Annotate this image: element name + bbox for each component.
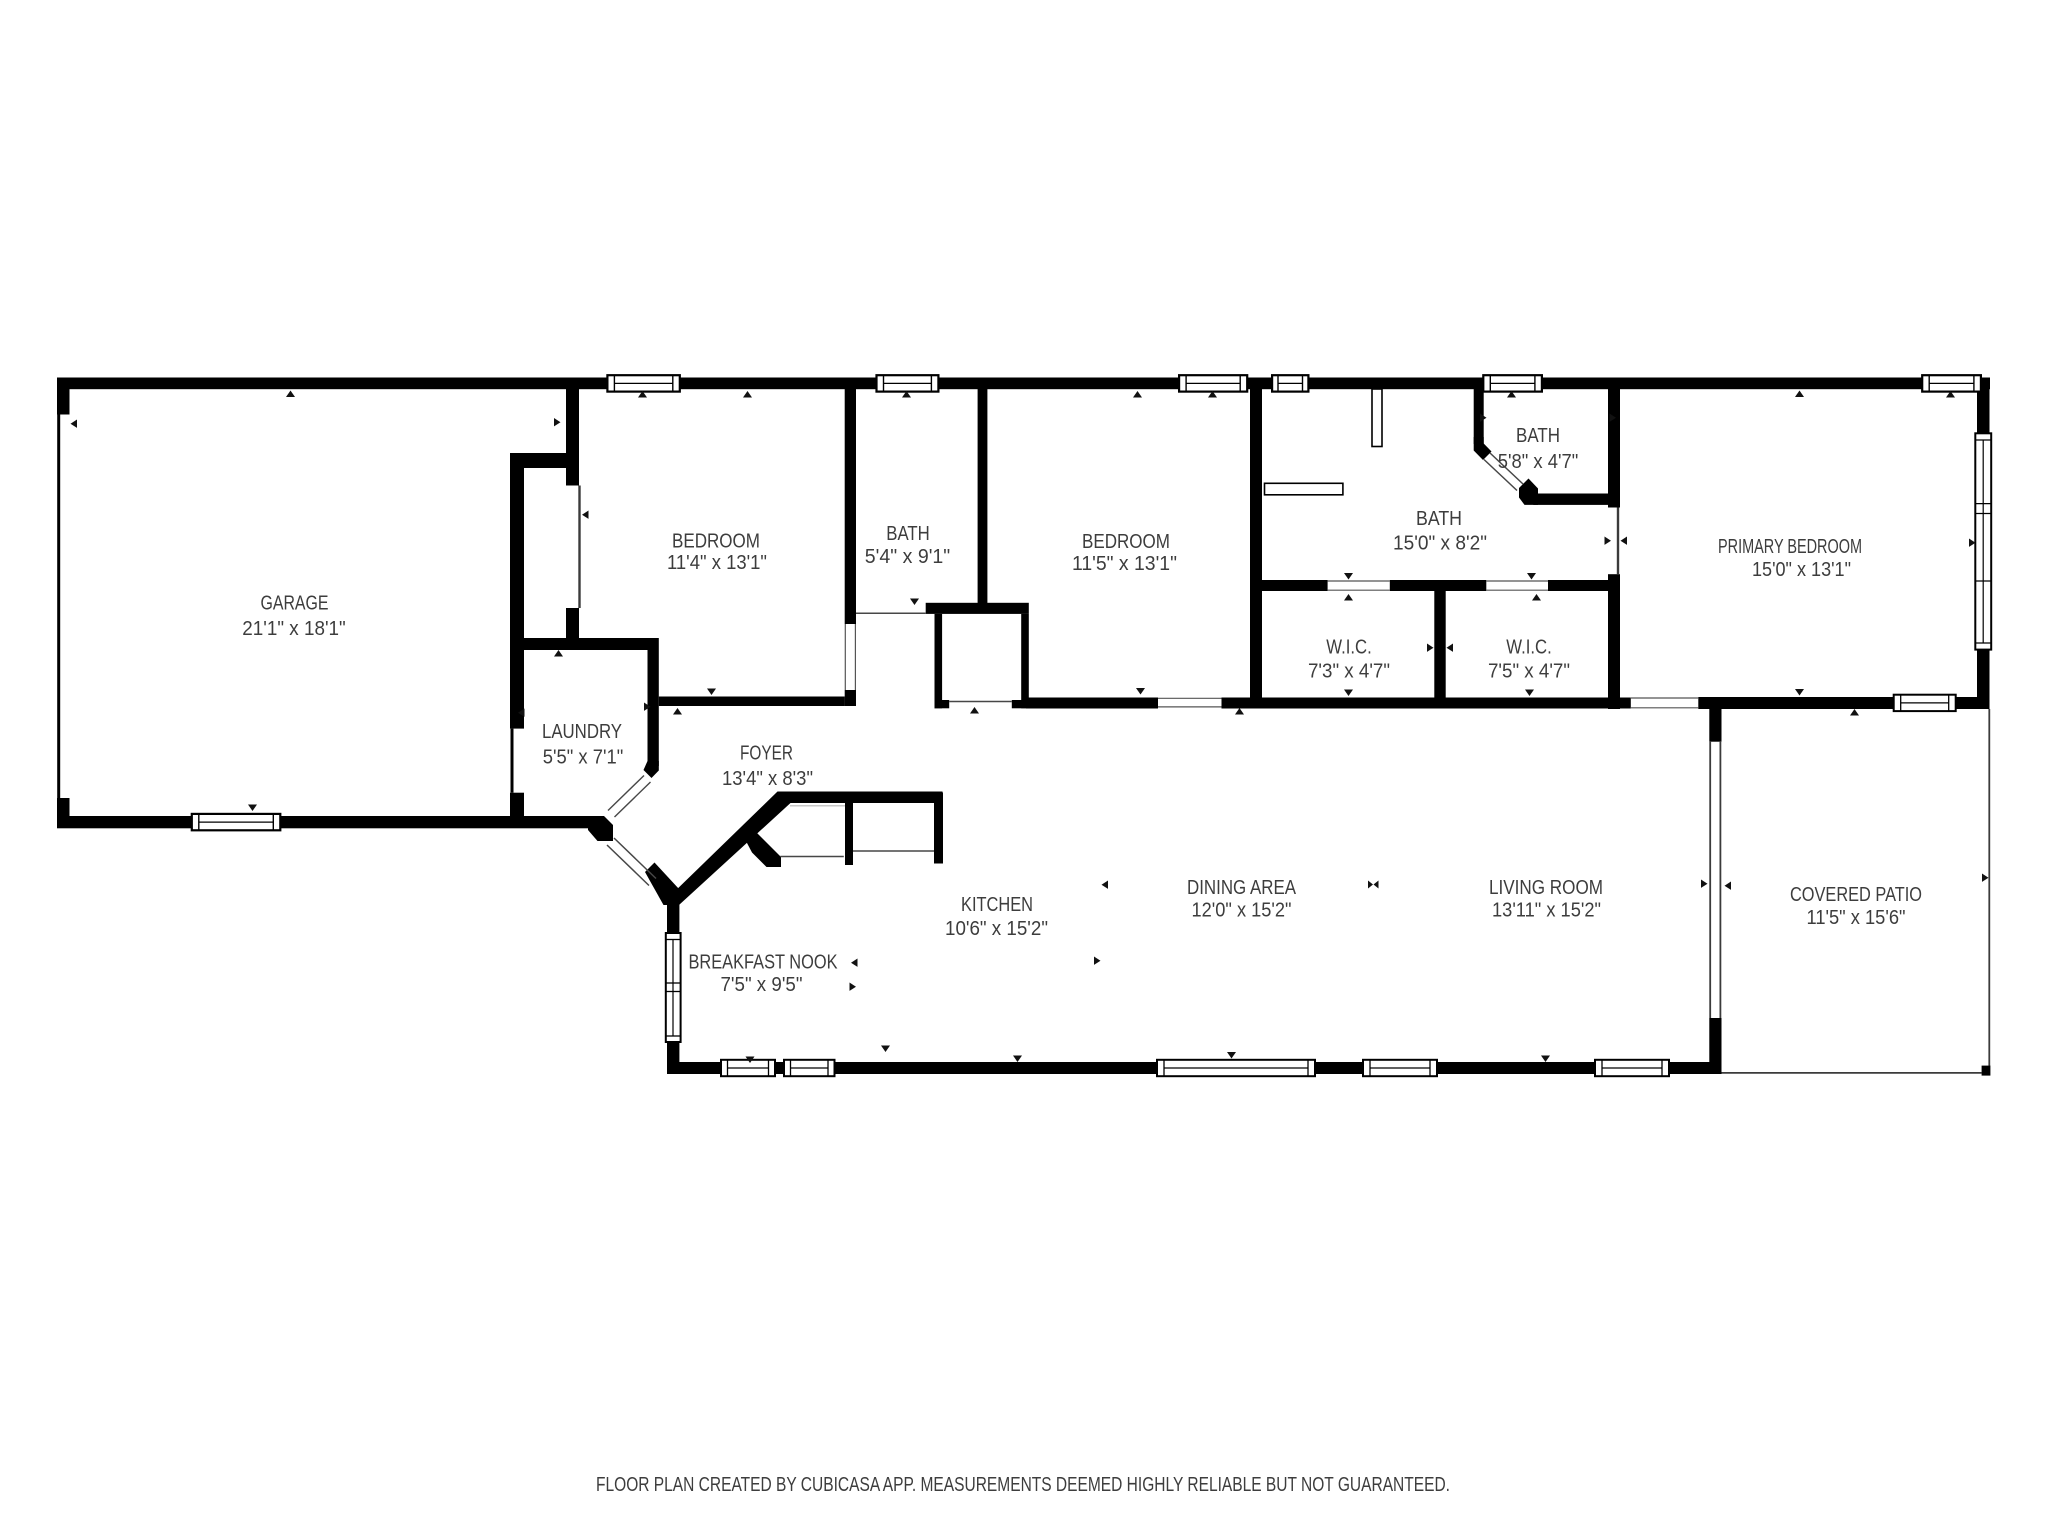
svg-text:DINING AREA: DINING AREA xyxy=(1187,876,1296,899)
svg-text:BATH: BATH xyxy=(1416,507,1462,530)
svg-text:15'0" x 8'2": 15'0" x 8'2" xyxy=(1393,532,1487,555)
svg-text:10'6" x 15'2": 10'6" x 15'2" xyxy=(945,917,1048,940)
svg-text:FOYER: FOYER xyxy=(740,742,793,765)
svg-text:5'5" x 7'1": 5'5" x 7'1" xyxy=(543,746,624,769)
svg-text:BATH: BATH xyxy=(886,522,930,545)
svg-text:11'4" x 13'1": 11'4" x 13'1" xyxy=(667,551,767,574)
svg-text:KITCHEN: KITCHEN xyxy=(961,893,1033,916)
svg-text:5'8" x 4'7": 5'8" x 4'7" xyxy=(1498,450,1579,473)
svg-text:FLOOR PLAN CREATED BY CUBICASA: FLOOR PLAN CREATED BY CUBICASA APP. MEAS… xyxy=(596,1473,1450,1496)
svg-text:LIVING ROOM: LIVING ROOM xyxy=(1489,876,1603,899)
svg-text:BATH: BATH xyxy=(1516,424,1560,447)
svg-text:W.I.C.: W.I.C. xyxy=(1506,636,1552,659)
svg-text:15'0" x 13'1": 15'0" x 13'1" xyxy=(1752,558,1851,581)
svg-text:COVERED PATIO: COVERED PATIO xyxy=(1790,883,1922,906)
svg-text:BREAKFAST NOOK: BREAKFAST NOOK xyxy=(689,951,838,974)
svg-text:BEDROOM: BEDROOM xyxy=(1082,530,1170,553)
svg-text:11'5" x 13'1": 11'5" x 13'1" xyxy=(1072,552,1177,575)
svg-text:5'4" x 9'1": 5'4" x 9'1" xyxy=(865,545,951,568)
svg-text:12'0" x 15'2": 12'0" x 15'2" xyxy=(1192,899,1292,922)
svg-text:7'5" x 9'5": 7'5" x 9'5" xyxy=(721,973,803,996)
svg-text:21'1" x 18'1": 21'1" x 18'1" xyxy=(242,617,346,640)
svg-text:7'5" x 4'7": 7'5" x 4'7" xyxy=(1488,660,1570,683)
svg-text:13'4" x 8'3": 13'4" x 8'3" xyxy=(722,767,813,790)
svg-text:W.I.C.: W.I.C. xyxy=(1326,636,1372,659)
svg-text:BEDROOM: BEDROOM xyxy=(672,530,760,553)
svg-text:GARAGE: GARAGE xyxy=(261,592,329,615)
svg-text:7'3" x 4'7": 7'3" x 4'7" xyxy=(1308,660,1390,683)
svg-text:13'11" x 15'2": 13'11" x 15'2" xyxy=(1492,899,1601,922)
svg-text:LAUNDRY: LAUNDRY xyxy=(542,720,622,743)
svg-text:PRIMARY BEDROOM: PRIMARY BEDROOM xyxy=(1718,535,1862,558)
svg-text:11'5" x 15'6": 11'5" x 15'6" xyxy=(1807,906,1906,929)
